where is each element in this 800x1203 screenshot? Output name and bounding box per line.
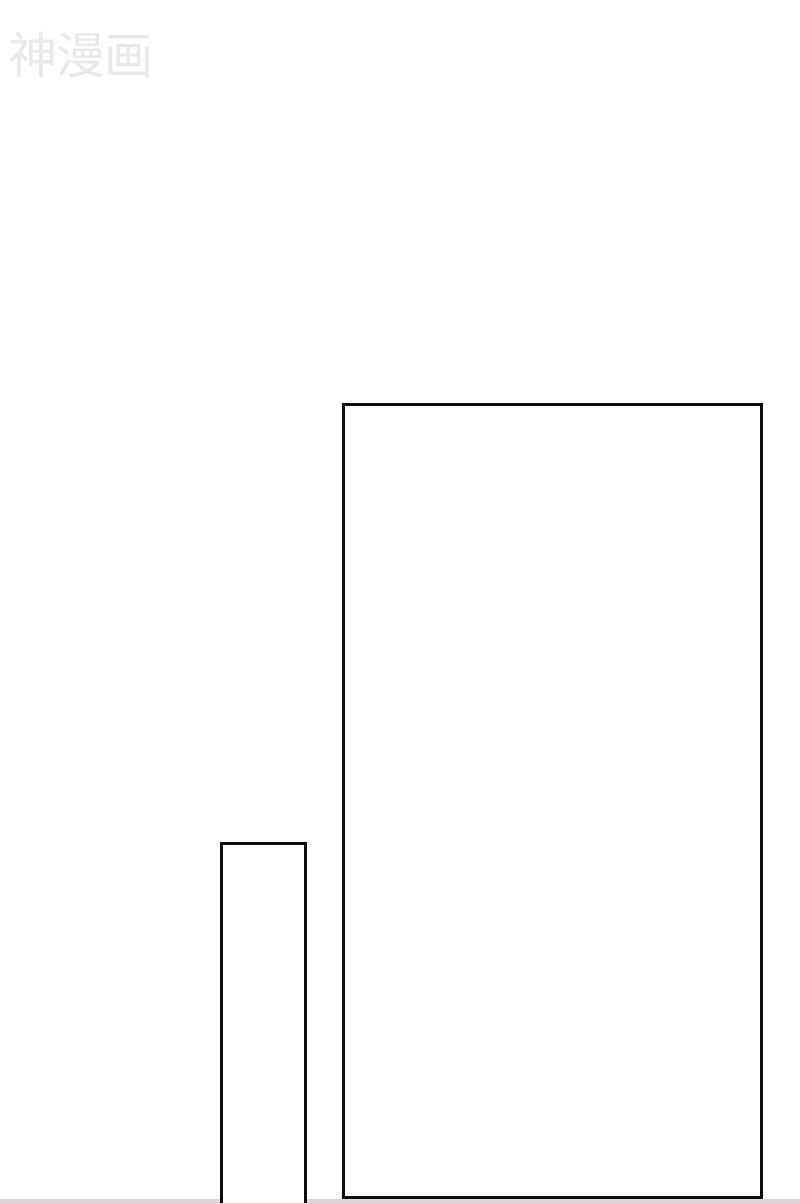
site-watermark-text: 神漫画	[8, 31, 152, 82]
page-bottom-divider	[0, 1199, 800, 1203]
comic-panel-small	[220, 842, 307, 1203]
comic-page: 神漫画	[0, 0, 800, 1203]
comic-panel-large	[342, 403, 763, 1199]
